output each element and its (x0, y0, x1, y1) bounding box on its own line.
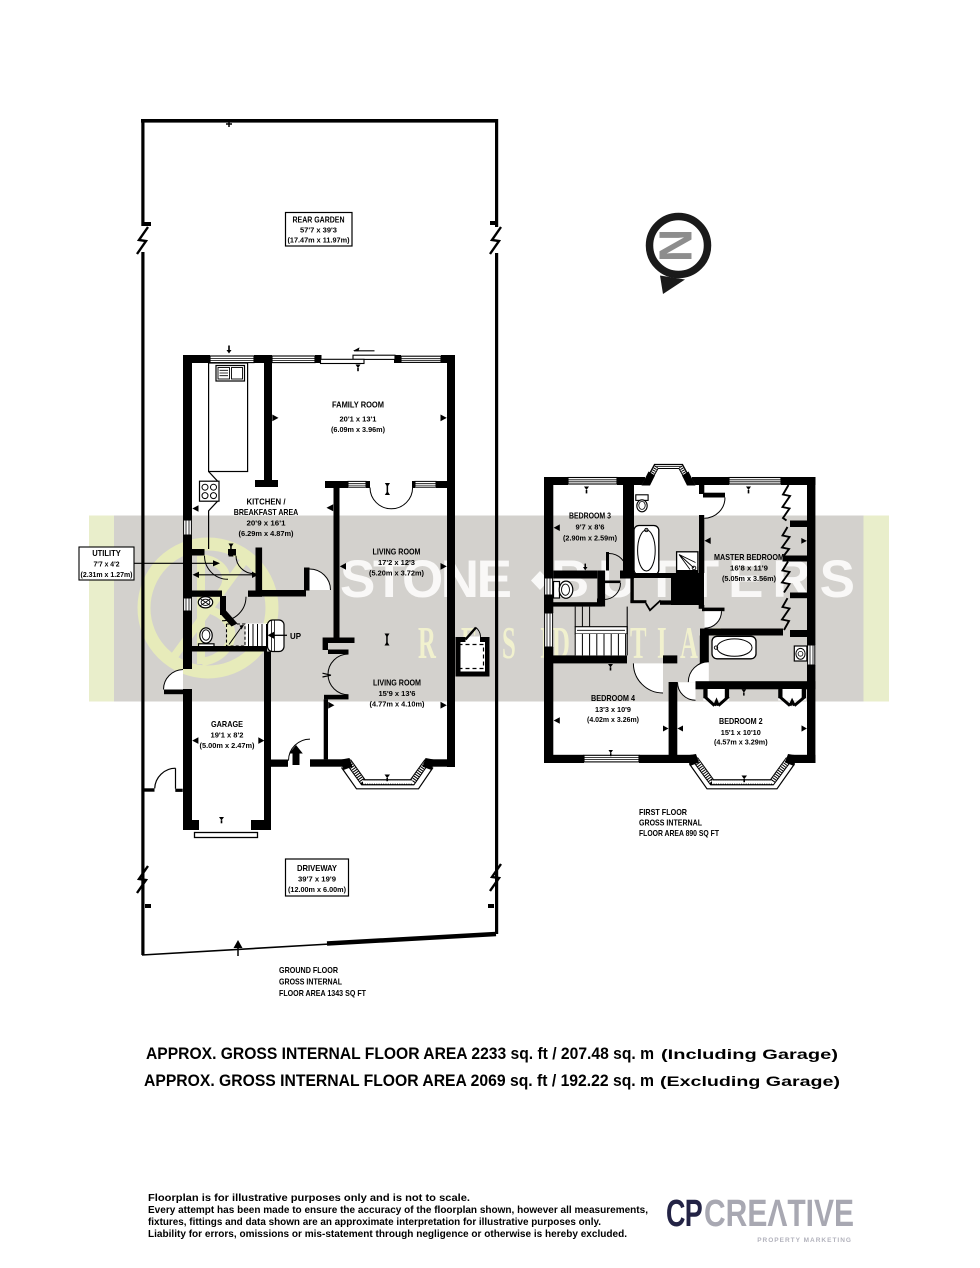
svg-text:BEDROOM 2: BEDROOM 2 (719, 716, 763, 726)
svg-text:CP: CP (666, 1193, 702, 1235)
svg-text:(12.00m x 6.00m): (12.00m x 6.00m) (288, 885, 346, 894)
svg-text:9'7 x 8'6: 9'7 x 8'6 (576, 523, 605, 532)
svg-text:16'8 x 11'9: 16'8 x 11'9 (730, 564, 768, 573)
svg-text:Liability for errors, omission: Liability for errors, omissions or mis-s… (148, 1229, 627, 1240)
svg-text:17'2 x 12'3: 17'2 x 12'3 (378, 558, 415, 567)
svg-text:(4.02m x 3.26m): (4.02m x 3.26m) (587, 715, 639, 724)
svg-text:15'1 x 10'10: 15'1 x 10'10 (721, 728, 761, 737)
svg-text:(6.29m x 4.87m): (6.29m x 4.87m) (239, 529, 294, 538)
svg-text:REAR GARDEN: REAR GARDEN (293, 215, 345, 225)
svg-text:(Excluding Garage): (Excluding Garage) (660, 1074, 840, 1089)
svg-text:FLOOR AREA 1343 SQ FT: FLOOR AREA 1343 SQ FT (279, 988, 367, 998)
svg-text:13'3 x 10'9: 13'3 x 10'9 (595, 705, 631, 714)
svg-text:CREΛTIVE: CREΛTIVE (704, 1193, 854, 1235)
svg-text:(5.05m x 3.56m): (5.05m x 3.56m) (722, 574, 776, 583)
svg-text:57'7 x 39'3: 57'7 x 39'3 (300, 226, 337, 235)
svg-text:(Including Garage): (Including Garage) (661, 1047, 838, 1062)
svg-text:7'7 x 4'2: 7'7 x 4'2 (94, 560, 120, 569)
svg-text:39'7 x 19'9: 39'7 x 19'9 (298, 875, 336, 884)
svg-text:KITCHEN /: KITCHEN / (247, 497, 287, 507)
svg-text:20'1 x 13'1: 20'1 x 13'1 (340, 415, 378, 424)
svg-text:15'9 x 13'6: 15'9 x 13'6 (379, 689, 416, 698)
svg-text:(17.47m x 11.97m): (17.47m x 11.97m) (288, 236, 350, 245)
svg-text:GROSS INTERNAL: GROSS INTERNAL (639, 818, 702, 828)
svg-text:FAMILY ROOM: FAMILY ROOM (332, 400, 384, 410)
svg-text:(2.31m x 1.27m): (2.31m x 1.27m) (81, 570, 133, 579)
svg-text:fixtures, fittings and data sh: fixtures, fittings and data shown are an… (148, 1217, 601, 1228)
svg-text:(5.20m x 3.72m): (5.20m x 3.72m) (369, 569, 424, 578)
svg-text:PROPERTY MARKETING: PROPERTY MARKETING (757, 1237, 852, 1244)
svg-text:LIVING ROOM: LIVING ROOM (373, 678, 421, 688)
svg-text:(4.57m x 3.29m): (4.57m x 3.29m) (714, 738, 768, 747)
svg-text:GARAGE: GARAGE (211, 719, 243, 729)
svg-text:(5.00m x 2.47m): (5.00m x 2.47m) (200, 741, 255, 750)
svg-text:UP: UP (290, 631, 301, 641)
svg-text:(2.90m x 2.59m): (2.90m x 2.59m) (563, 534, 617, 543)
svg-text:UTILITY: UTILITY (92, 548, 121, 558)
svg-text:20'9 x 16'1: 20'9 x 16'1 (247, 519, 287, 528)
svg-text:MASTER BEDROOM: MASTER BEDROOM (714, 552, 784, 562)
svg-text:Every attempt has been made to: Every attempt has been made to ensure th… (148, 1205, 648, 1216)
svg-text:19'1 x 8'2: 19'1 x 8'2 (211, 731, 244, 740)
svg-text:Floorplan is for illustrative: Floorplan is for illustrative purposes o… (148, 1193, 470, 1204)
svg-text:GROUND FLOOR: GROUND FLOOR (279, 965, 338, 975)
svg-text:GROSS INTERNAL: GROSS INTERNAL (279, 977, 342, 987)
svg-text:LIVING ROOM: LIVING ROOM (373, 547, 421, 557)
svg-text:BREAKFAST AREA: BREAKFAST AREA (234, 507, 299, 517)
svg-text:BEDROOM 4: BEDROOM 4 (591, 693, 635, 703)
svg-text:STONE: STONE (340, 550, 512, 609)
svg-text:BEDROOM 3: BEDROOM 3 (569, 511, 611, 521)
svg-text:APPROX. GROSS INTERNAL FLOOR A: APPROX. GROSS INTERNAL FLOOR AREA 2233 s… (146, 1045, 654, 1063)
svg-text:DRIVEWAY: DRIVEWAY (297, 863, 337, 873)
svg-text:N: N (650, 229, 702, 262)
svg-text:FLOOR AREA 890 SQ FT: FLOOR AREA 890 SQ FT (639, 828, 720, 838)
svg-text:(4.77m x 4.10m): (4.77m x 4.10m) (370, 700, 425, 709)
svg-text:FIRST FLOOR: FIRST FLOOR (639, 807, 687, 817)
svg-text:APPROX. GROSS INTERNAL FLOOR A: APPROX. GROSS INTERNAL FLOOR AREA 2069 s… (144, 1072, 654, 1090)
svg-text:(6.09m x 3.96m): (6.09m x 3.96m) (331, 425, 385, 434)
